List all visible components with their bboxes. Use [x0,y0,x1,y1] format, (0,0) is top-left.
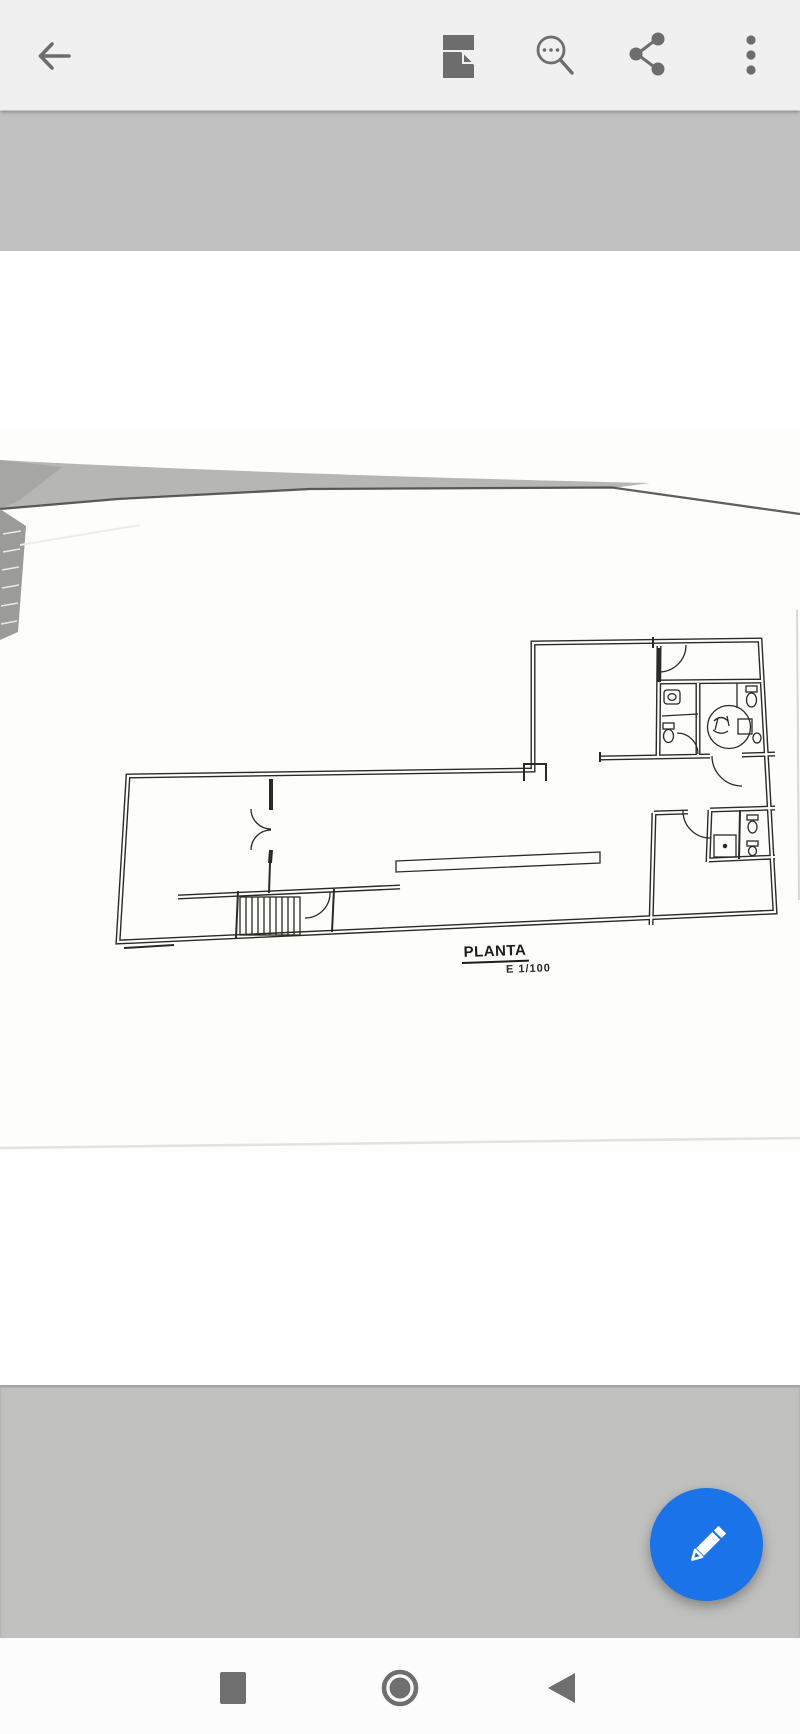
pencil-edit-icon [681,1519,733,1571]
document-page-icon[interactable] [441,33,477,86]
plan-scale-label: E 1/100 [506,962,551,976]
search-magnifier-icon[interactable] [533,32,579,85]
share-icon[interactable] [627,30,669,83]
image-letterbox-top [0,111,800,251]
floor-plan-drawing [0,430,800,1152]
back-triangle-icon[interactable] [548,1673,575,1708]
phone-screen: PLANTA E 1/100 [0,0,800,1734]
photo-of-floor-plan[interactable] [0,430,800,1152]
edit-fab-button[interactable] [650,1488,763,1601]
home-circle-icon[interactable] [381,1669,419,1712]
android-navbar [0,1637,800,1734]
viewer-toolbar [0,0,800,110]
overflow-menu-icon[interactable] [738,30,764,85]
recents-square-icon[interactable] [220,1672,246,1709]
plan-title-label: PLANTA [461,942,528,964]
back-arrow-icon[interactable] [33,35,75,82]
